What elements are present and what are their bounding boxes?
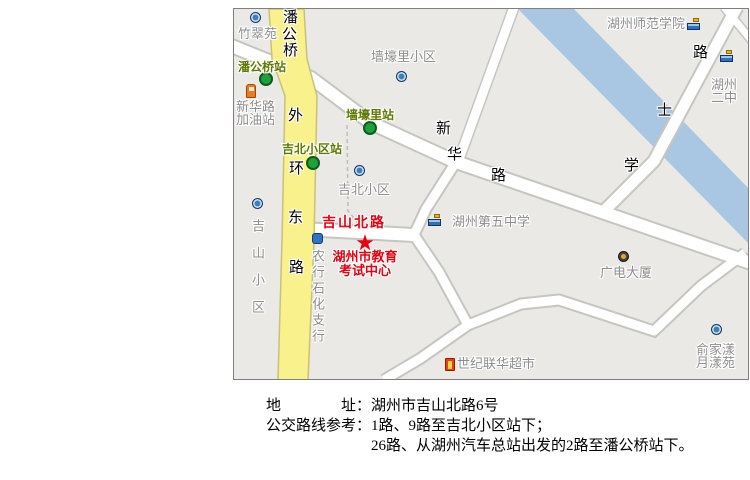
caption-row-bus-routes-2: 26路、从湖州汽车总站出发的2路至潘公桥站下。 [266,436,694,456]
road-jishanbei [301,229,414,235]
map [233,8,749,380]
caption-text: 26路、从湖州汽车总站出发的2路至潘公桥站下。 [371,436,694,456]
map-roads-graphic [234,9,748,379]
caption-row-bus-routes: 公交路线参考： 1路、9路至吉北小区站下； [266,416,694,436]
road-south [414,235,468,325]
page: 竹翠苑新华路加油站墙壕里小区吉北小区吉山小区农行石化支行湖州第五中学广电大厦世纪… [0,0,750,480]
caption-label-part: 地 [266,396,281,416]
district-boundary-dashed-line [347,125,364,230]
caption-label: 地址： [266,396,371,416]
road-connector [414,162,456,235]
caption-label [266,436,371,456]
caption-text: 1路、9路至吉北小区站下； [371,416,551,436]
caption-label: 公交路线参考： [266,416,371,436]
caption-row-address: 地址： 湖州市吉山北路6号 [266,396,694,416]
address-info: 地址： 湖州市吉山北路6号 公交路线参考： 1路、9路至吉北小区站下； 26路、… [266,396,694,456]
road-waihuan-east-yellow [269,9,317,379]
caption-label-part: 址： [341,396,371,416]
caption-text: 湖州市吉山北路6号 [371,396,499,416]
road-southwest [384,325,468,379]
caption-label-part: 公交路线参考： [266,416,371,436]
road-branch-north [458,9,514,162]
